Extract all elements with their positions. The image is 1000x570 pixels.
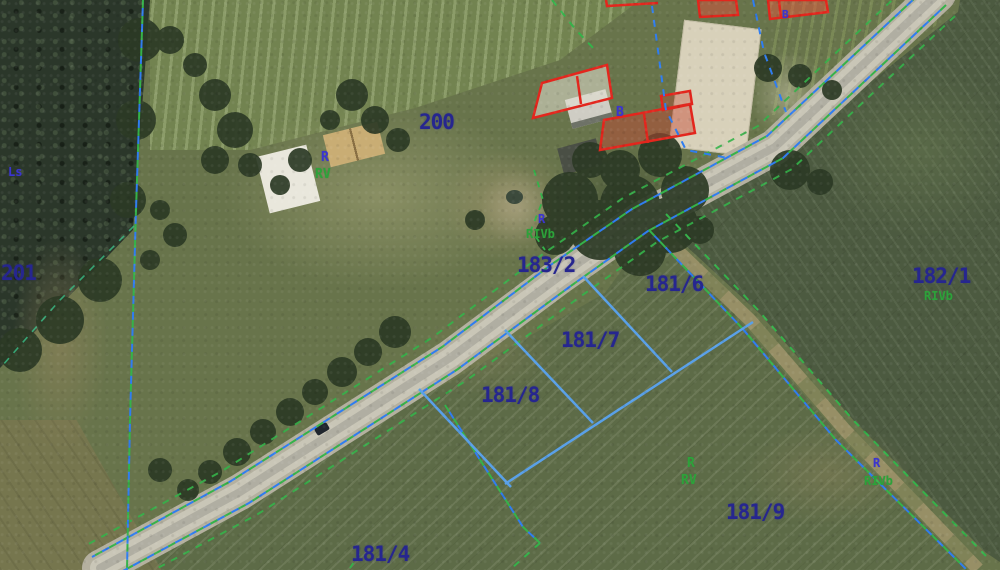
parcel-label-181-9: 181/9 [726, 502, 784, 523]
landclass-label-r-field9: R [687, 457, 695, 470]
parcel-label-181-6: 181/6 [645, 274, 703, 295]
parcel-label-200: 200 [419, 112, 454, 133]
parcel-label-181-4: 181/4 [351, 544, 409, 565]
landclass-label-r-lawn: R [321, 151, 329, 164]
parcel-label-181-8: 181/8 [481, 385, 539, 406]
subdivision-lines [419, 276, 753, 487]
landuse-label-rivb-right: RIVb [864, 475, 893, 487]
parcel-label-201: 201 [1, 263, 36, 284]
landclass-label-r-garden: R [538, 213, 545, 225]
landclass-label-r-right: R [873, 457, 880, 469]
parcel-label-181-7: 181/7 [561, 330, 619, 351]
landuse-label-rivb-garden: RIVb [526, 228, 555, 240]
landclass-label-ls: Ls [8, 166, 22, 178]
parcel-label-183-2: 183/2 [517, 255, 575, 276]
boundary-overlay [0, 0, 1000, 570]
landclass-label-b-top: B [782, 9, 789, 20]
map-viewport[interactable]: Ls 201 200 R RV B B R RIVb 183/2 181/6 1… [0, 0, 1000, 570]
tree-canopy [0, 18, 842, 501]
landuse-label-rivb-182: RIVb [924, 290, 953, 302]
landclass-label-b-house: B [616, 106, 624, 119]
parcel-label-182-1: 182/1 [912, 266, 970, 287]
landuse-label-rv-lawn: RV [315, 168, 331, 181]
landuse-label-rv-field9: RV [681, 474, 697, 487]
